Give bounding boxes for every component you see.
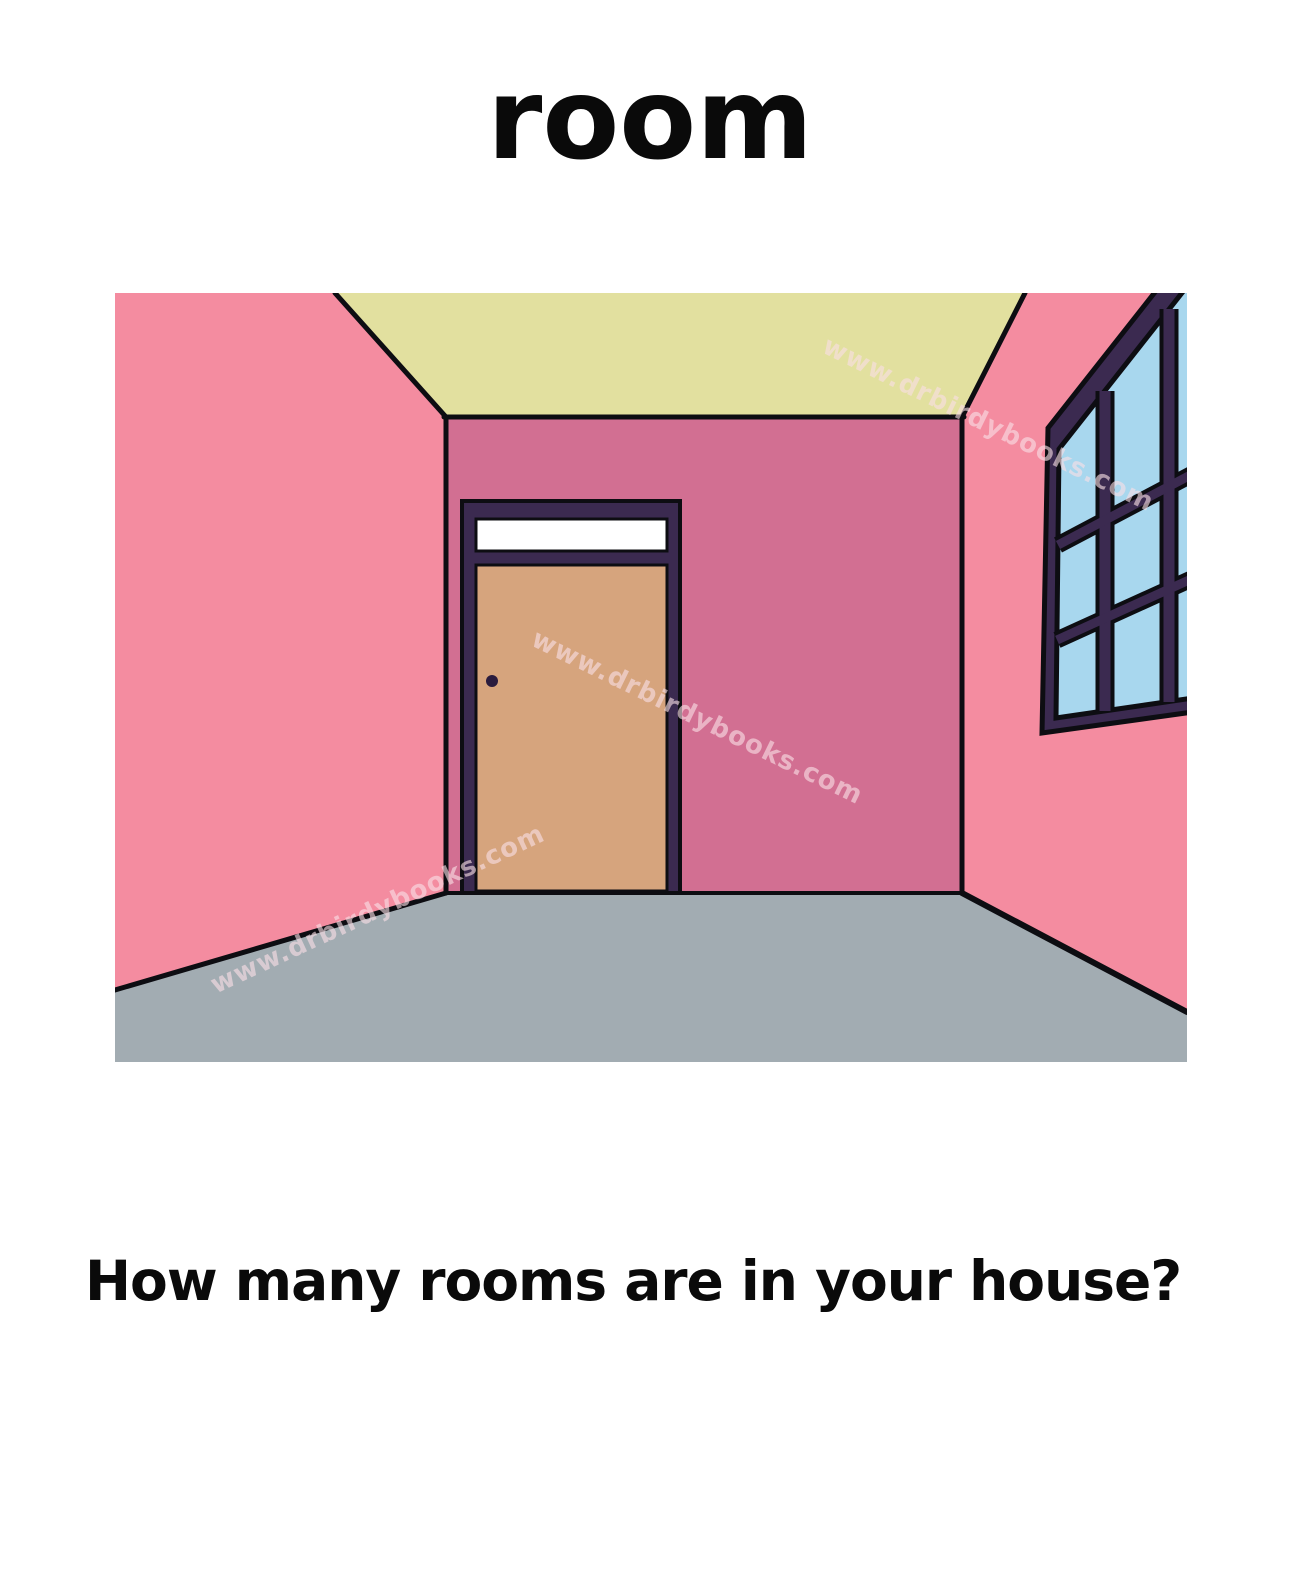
question-text: How many rooms are in your house?: [85, 1249, 1181, 1313]
transom-window: [476, 519, 667, 551]
door-knob: [486, 675, 498, 687]
page-title: room: [0, 64, 1300, 176]
room-illustration: www.drbirdybooks.com www.drbirdybooks.co…: [115, 293, 1187, 1062]
room-scene: www.drbirdybooks.com www.drbirdybooks.co…: [115, 293, 1187, 1062]
